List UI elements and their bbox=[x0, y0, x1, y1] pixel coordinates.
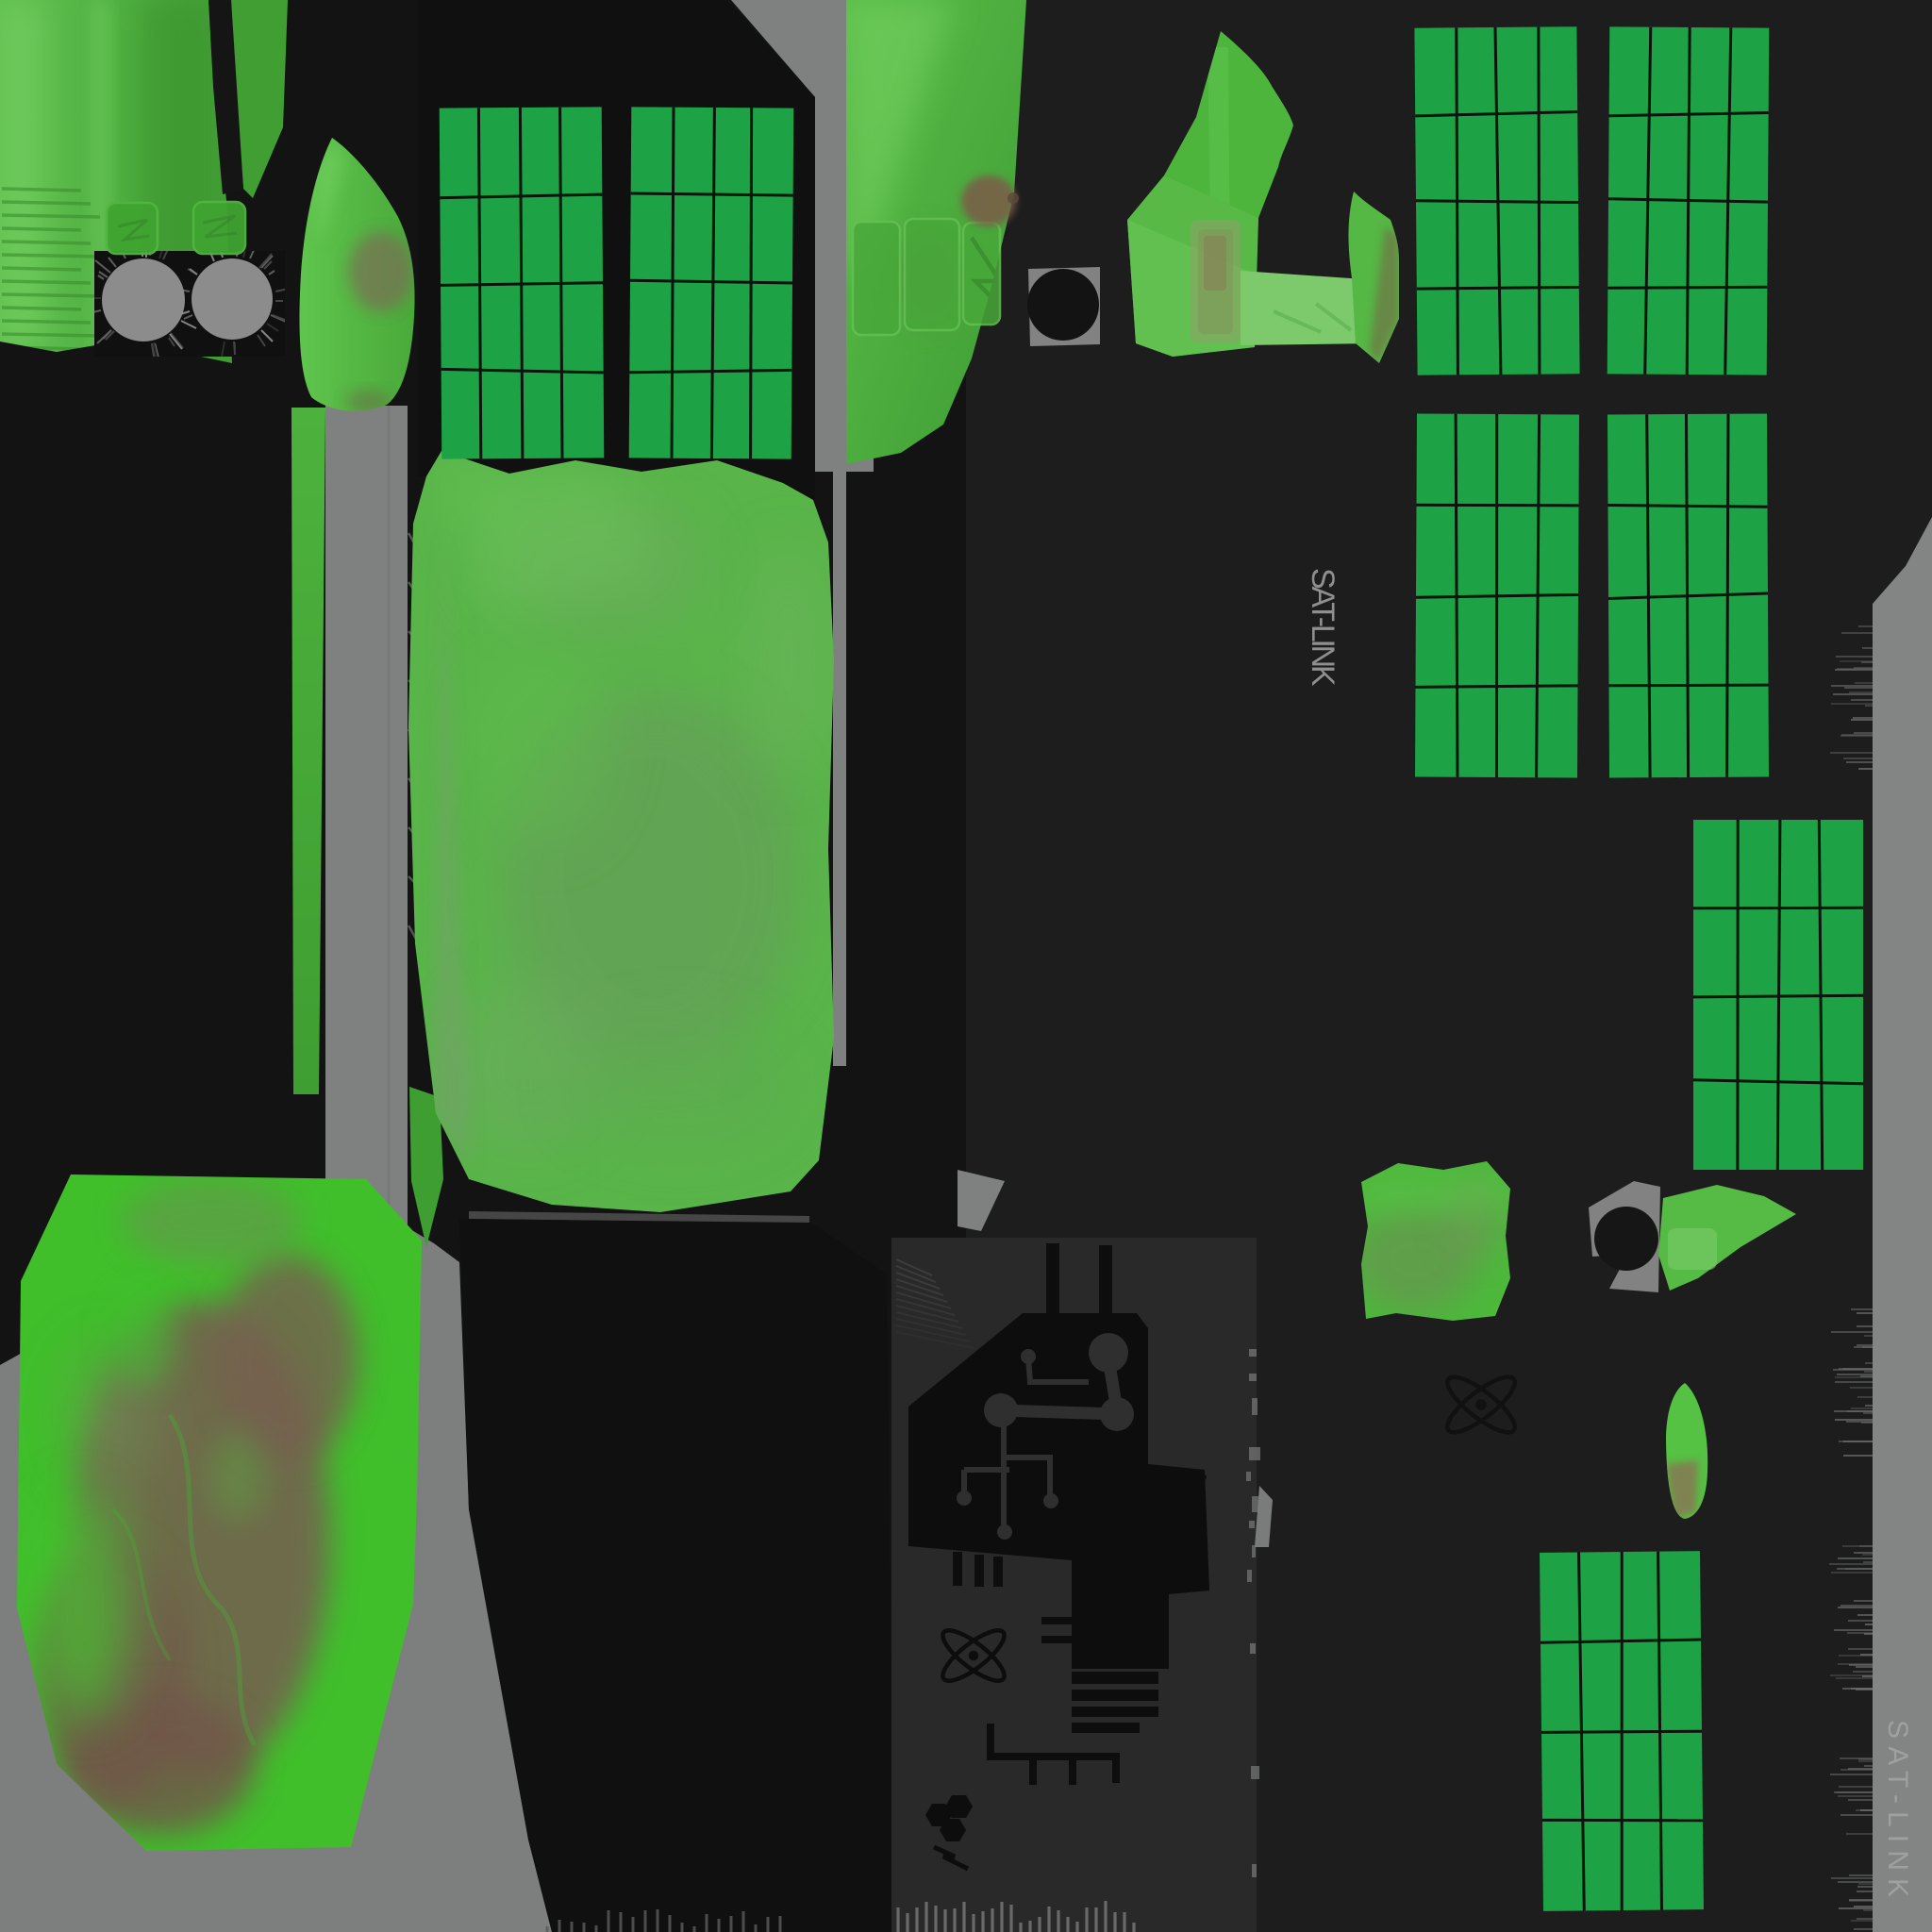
svg-text:SAT-LINK: SAT-LINK bbox=[1305, 568, 1341, 687]
